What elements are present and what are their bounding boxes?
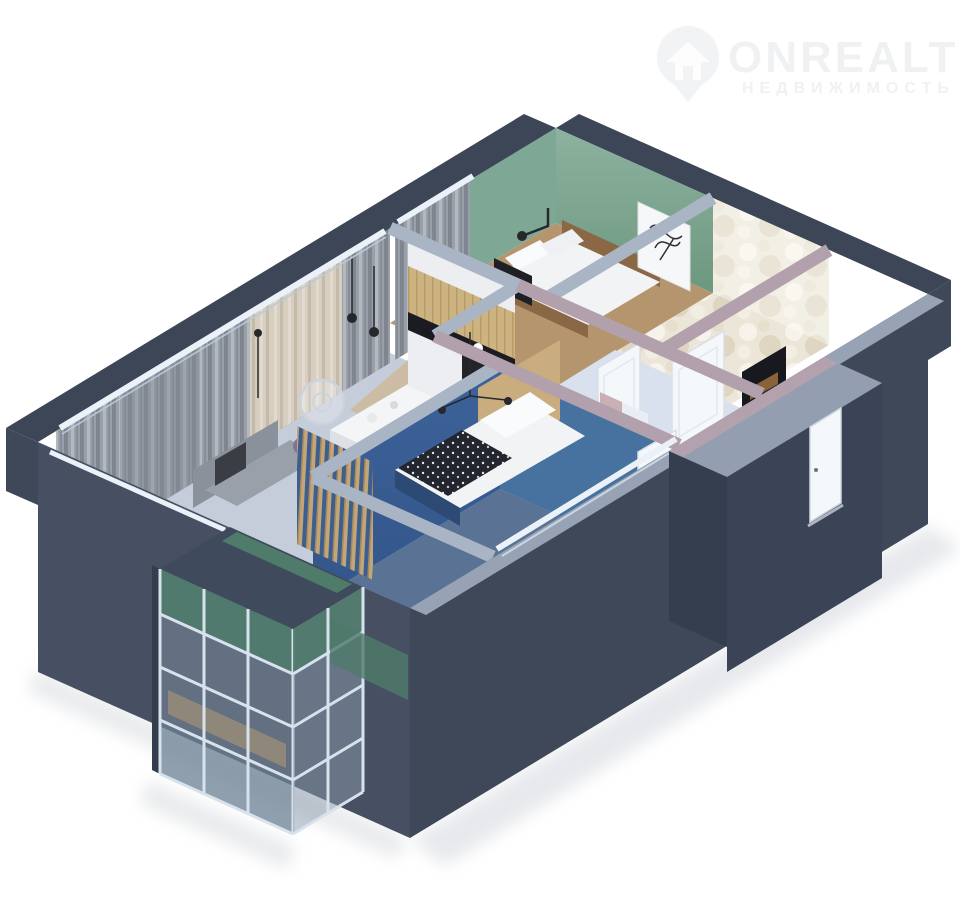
coffee-table [300, 380, 344, 424]
entry-door [808, 408, 843, 526]
entry-side-wall [669, 451, 727, 647]
floorplan-svg: ONREALT НЕДВИЖИМОСТЬ [0, 0, 960, 910]
brand-subtitle: НЕДВИЖИМОСТЬ [742, 80, 955, 97]
balcony-glass-right [293, 587, 363, 834]
table-item [390, 401, 398, 409]
right-wall-sliver [928, 280, 951, 360]
pendant-bulb [369, 327, 379, 337]
floorplan-render: ONREALT НЕДВИЖИМОСТЬ [0, 0, 960, 910]
floor-lamp-head [254, 329, 262, 337]
house-door [683, 66, 693, 80]
door-handle [814, 468, 818, 472]
pendant-bulb [347, 313, 357, 323]
table-item [367, 413, 377, 423]
brand-text: ONREALT [728, 33, 958, 82]
